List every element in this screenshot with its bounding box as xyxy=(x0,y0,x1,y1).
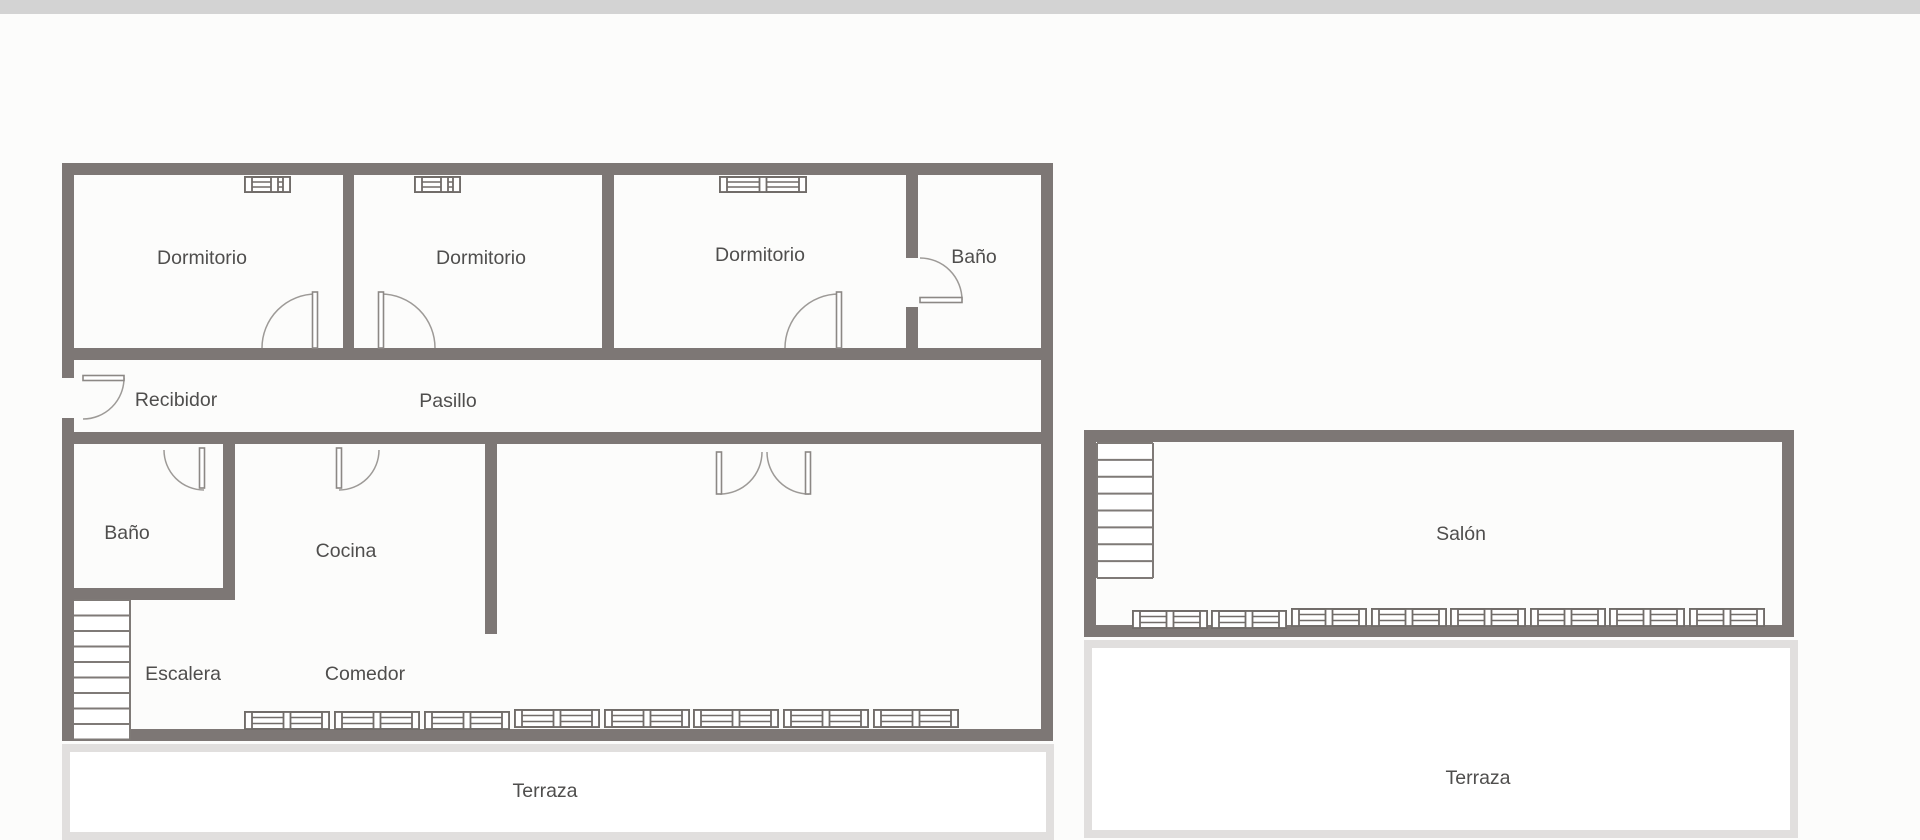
stairs-symbol-salon xyxy=(1096,443,1153,578)
wall xyxy=(62,729,1053,741)
wall xyxy=(1041,163,1053,741)
room-label-bano-top: Baño xyxy=(951,246,997,268)
terrace-salon xyxy=(1088,644,1794,834)
window-symbol xyxy=(1133,611,1207,628)
window-symbol xyxy=(245,177,290,192)
room-label-dormitorio2: Dormitorio xyxy=(436,247,526,269)
window-symbol xyxy=(1451,609,1525,626)
dining-window-row xyxy=(245,710,958,729)
room-label-dormitorio1: Dormitorio xyxy=(157,247,247,269)
window-symbol xyxy=(1212,611,1286,628)
wall xyxy=(62,432,1053,444)
wall xyxy=(62,348,1053,360)
window-symbol xyxy=(1372,609,1446,626)
bedroom-windows xyxy=(245,177,806,192)
door-symbol-dormitorio1 xyxy=(262,292,318,348)
room-label-escalera: Escalera xyxy=(145,663,221,685)
room-label-pasillo: Pasillo xyxy=(419,390,477,412)
room-label-terraza-main: Terraza xyxy=(512,780,577,802)
wall xyxy=(62,163,1053,175)
floor-plan-canvas: Dormitorio Dormitorio Dormitorio Baño Re… xyxy=(0,0,1920,840)
window-symbol xyxy=(1292,609,1366,626)
window-symbol xyxy=(784,710,868,727)
wall xyxy=(1084,430,1096,637)
window-symbol xyxy=(1690,609,1764,626)
window-symbol xyxy=(694,710,778,727)
door-symbol-dormitorio2 xyxy=(379,292,436,348)
wall xyxy=(1084,430,1794,442)
window-symbol xyxy=(515,710,599,727)
window-symbol xyxy=(874,710,958,727)
window-symbol xyxy=(425,712,509,729)
door-symbol-bano-bottom xyxy=(164,448,205,490)
wall xyxy=(62,163,74,378)
wall xyxy=(62,588,235,600)
window-symbol xyxy=(1531,609,1605,626)
wall xyxy=(62,418,74,741)
wall xyxy=(485,444,497,634)
room-label-bano-bottom: Baño xyxy=(104,522,150,544)
room-label-cocina: Cocina xyxy=(316,540,377,562)
window-symbol xyxy=(605,710,689,727)
wall xyxy=(223,444,235,600)
room-label-recibidor: Recibidor xyxy=(135,389,218,411)
window-symbol xyxy=(415,177,460,192)
double-door-symbol-comedor xyxy=(717,452,811,494)
wall xyxy=(906,307,918,348)
top-bar xyxy=(0,0,1920,14)
window-symbol xyxy=(720,177,806,192)
wall xyxy=(1782,430,1794,637)
room-label-salon: Salón xyxy=(1436,523,1486,545)
window-symbol xyxy=(245,712,329,729)
stairs-symbol-main xyxy=(74,600,130,740)
wall xyxy=(602,175,614,348)
door-symbol-cocina xyxy=(337,448,380,490)
window-symbol xyxy=(1610,609,1684,626)
window-symbol xyxy=(335,712,419,729)
room-label-comedor: Comedor xyxy=(325,663,406,685)
door-symbol-entrance xyxy=(83,376,124,420)
room-label-dormitorio3: Dormitorio xyxy=(715,244,805,266)
room-label-terraza-salon: Terraza xyxy=(1445,767,1510,789)
door-symbol-dormitorio3 xyxy=(785,292,842,348)
wall xyxy=(906,175,918,258)
wall xyxy=(343,175,354,348)
